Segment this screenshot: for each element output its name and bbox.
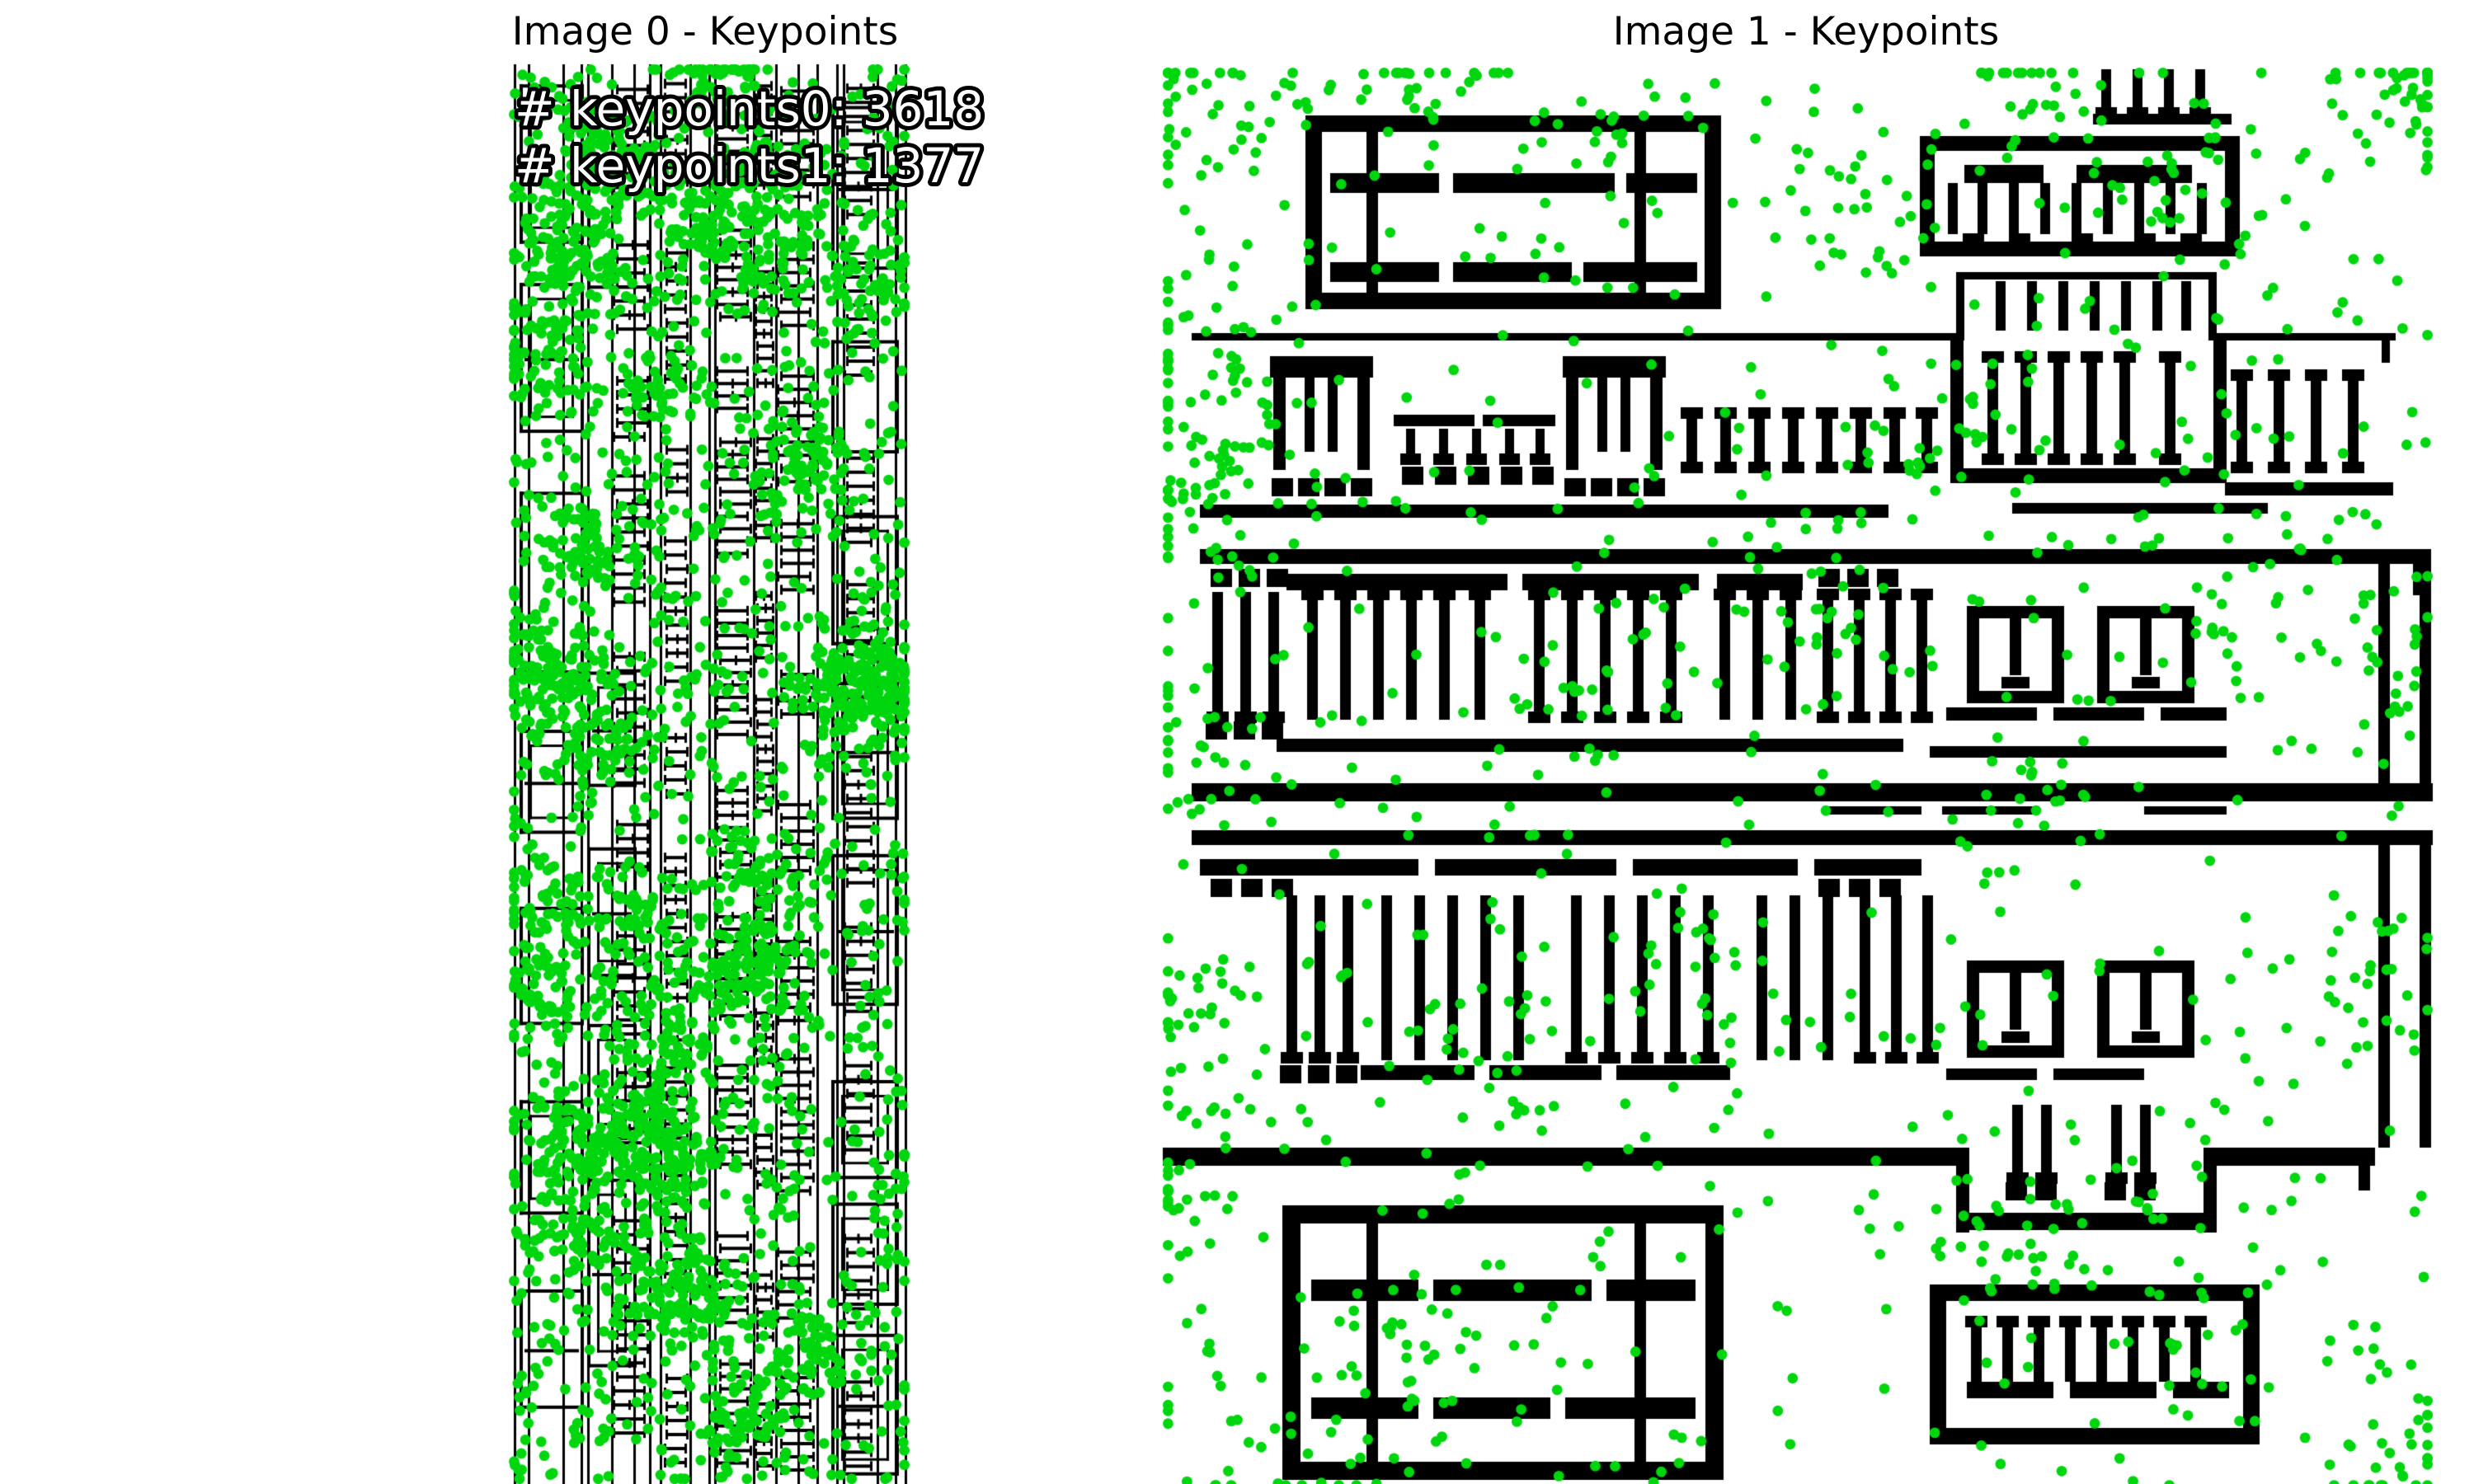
panel1-title: Image 1 - Keypoints xyxy=(1613,10,1999,54)
keypoints-figure: Image 0 - Keypoints Image 1 - Keypoints … xyxy=(0,0,2474,1484)
keypoints-figure-canvas xyxy=(0,0,2474,1484)
panel0-title: Image 0 - Keypoints xyxy=(512,10,898,54)
